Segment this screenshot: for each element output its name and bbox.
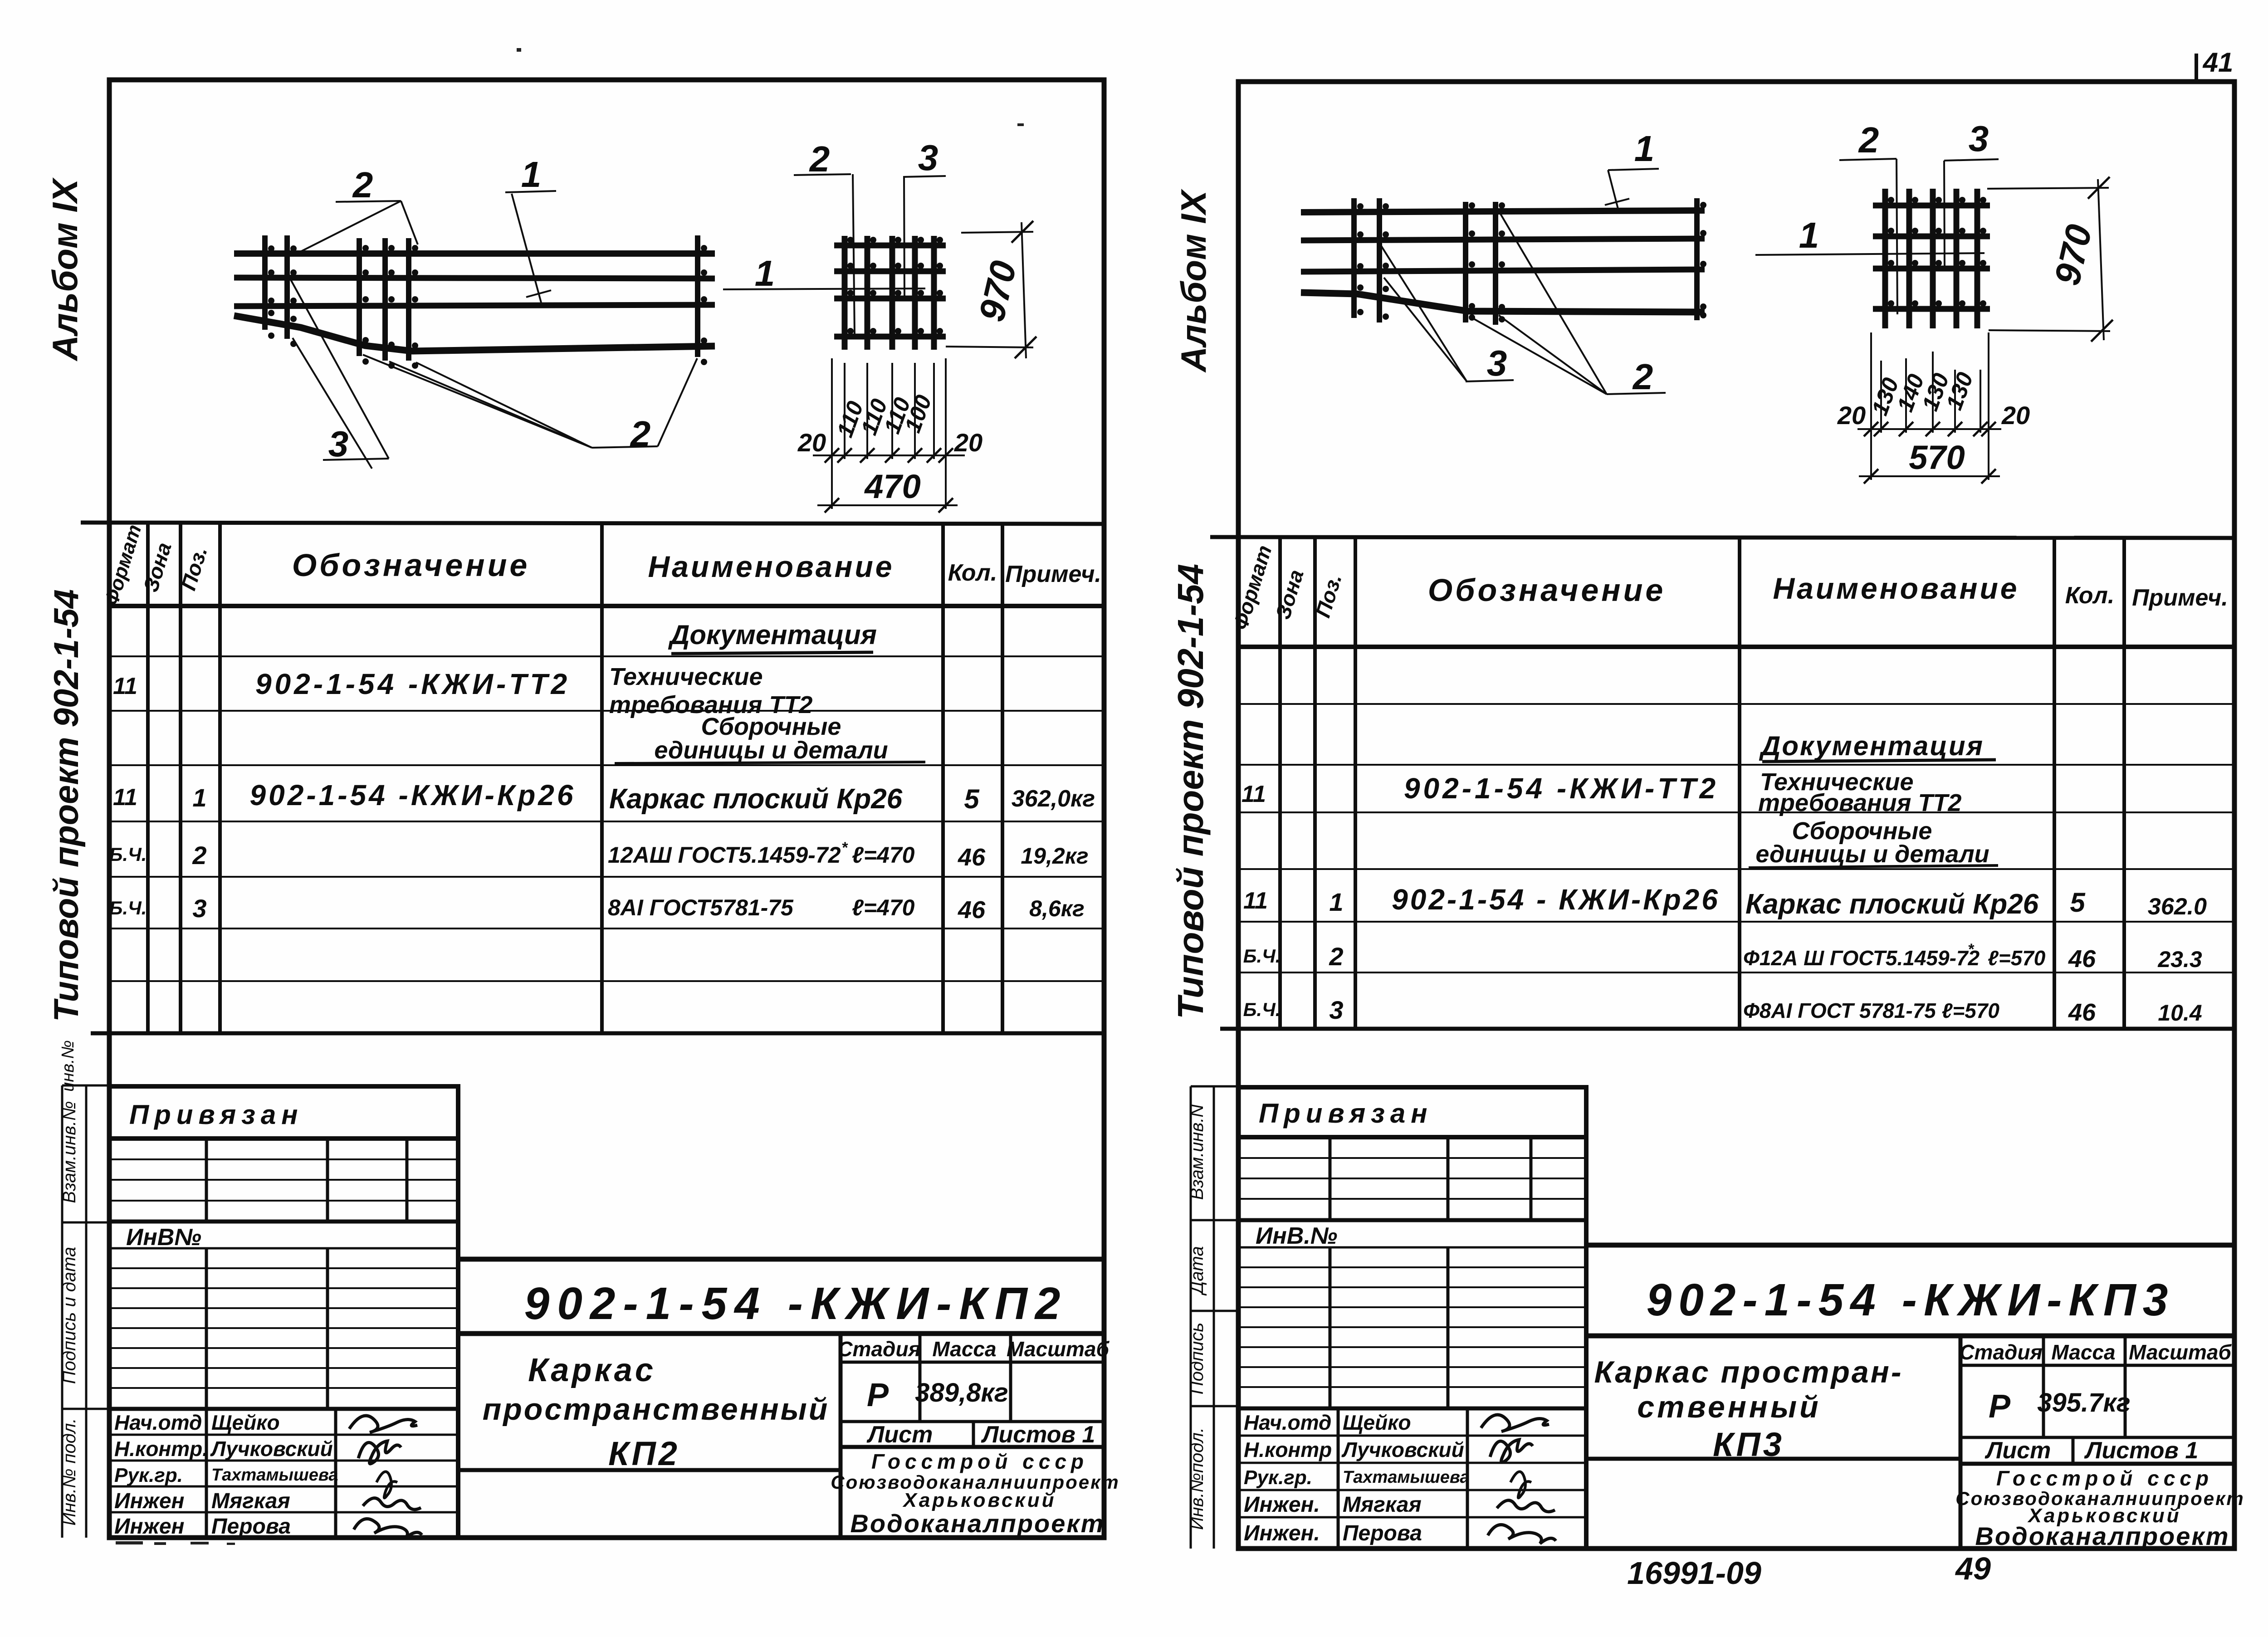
svg-text:2: 2 (352, 165, 373, 205)
svg-text:2: 2 (630, 414, 651, 454)
svg-text:2: 2 (1858, 120, 1879, 160)
svg-text:ИнВ№: ИнВ№ (126, 1224, 201, 1251)
svg-text:46: 46 (2068, 945, 2096, 972)
svg-text:Б.Ч.: Б.Ч. (1243, 945, 1281, 967)
svg-text:Перова: Перова (1343, 1521, 1422, 1545)
svg-text:Подпись: Подпись (1187, 1323, 1207, 1395)
svg-text:ℓ=570: ℓ=570 (1988, 946, 2046, 970)
svg-text:Каркас плоский Кр26: Каркас плоский Кр26 (1745, 889, 2039, 920)
svg-text:5: 5 (964, 784, 980, 814)
svg-text:395.7кг: 395.7кг (2037, 1388, 2131, 1417)
svg-text:ственный: ственный (1637, 1390, 1821, 1424)
svg-text:Инв.№ подл.: Инв.№ подл. (59, 1418, 79, 1525)
svg-text:20: 20 (1837, 401, 1866, 430)
svg-text:1: 1 (192, 783, 206, 812)
svg-text:Привязан: Привязан (129, 1099, 303, 1130)
svg-text:8АI ГОСТ5781-75: 8АI ГОСТ5781-75 (608, 895, 794, 920)
svg-text:362,0кг: 362,0кг (1012, 786, 1095, 812)
svg-text:Ф12А Ш ГОСТ5.1459-72: Ф12А Ш ГОСТ5.1459-72 (1743, 946, 1980, 970)
svg-text:Инв.№подл.: Инв.№подл. (1187, 1427, 1207, 1530)
svg-text:Щейко: Щейко (211, 1411, 280, 1434)
svg-text:902-1-54 -КЖИ-Кр26: 902-1-54 -КЖИ-Кр26 (250, 779, 576, 811)
svg-text:КП2: КП2 (608, 1435, 680, 1472)
svg-text:Наименование: Наименование (1773, 572, 2019, 605)
svg-text:2: 2 (1632, 357, 1653, 397)
svg-text:Альбом IX: Альбом IX (1173, 189, 1213, 373)
svg-text:12АШ ГОСТ5.1459-72: 12АШ ГОСТ5.1459-72 (608, 842, 841, 868)
svg-text:Примеч.: Примеч. (1005, 561, 1101, 587)
svg-text:3: 3 (328, 424, 349, 464)
svg-text:20: 20 (954, 428, 982, 457)
svg-text:Р: Р (867, 1377, 889, 1413)
svg-text:Сборочные: Сборочные (701, 713, 841, 740)
svg-text:49: 49 (1955, 1551, 1991, 1586)
svg-text:2: 2 (1329, 942, 1343, 971)
svg-text:Взам.инв.№: Взам.инв.№ (59, 1101, 79, 1203)
svg-text:Госстрой ссср: Госстрой ссср (871, 1450, 1088, 1473)
svg-text:3: 3 (918, 137, 938, 178)
svg-text:20: 20 (797, 428, 826, 457)
svg-text:Нач.отд: Нач.отд (1244, 1411, 1331, 1434)
svg-text:Тахтамышева: Тахтамышева (211, 1466, 338, 1485)
svg-text:2: 2 (809, 139, 830, 179)
svg-text:46: 46 (958, 844, 986, 871)
svg-text:389,8кг: 389,8кг (915, 1378, 1008, 1407)
svg-text:1: 1 (1799, 215, 1819, 255)
svg-text:Мягкая: Мягкая (211, 1489, 290, 1513)
svg-text:Перова: Перова (211, 1515, 291, 1539)
svg-text:Типовой проект 902-1-54: Типовой проект 902-1-54 (47, 589, 86, 1022)
svg-text:Инжен.: Инжен. (1244, 1521, 1320, 1545)
svg-text:единицы и детали: единицы и детали (1755, 840, 1989, 868)
svg-text:Примеч.: Примеч. (2132, 585, 2228, 611)
svg-text:902-1-54 -КЖИ-ТТ2: 902-1-54 -КЖИ-ТТ2 (1404, 772, 1719, 805)
svg-text:Зона: Зона (1271, 567, 1308, 622)
svg-text:Обозначение: Обозначение (292, 547, 530, 583)
svg-text:Листов 1: Листов 1 (2084, 1437, 2199, 1464)
svg-text:Тахтамышева: Тахтамышева (1343, 1468, 1469, 1487)
svg-text:19,2кг: 19,2кг (1021, 843, 1088, 869)
svg-text:Водоканалпроект: Водоканалпроект (850, 1509, 1105, 1538)
svg-text:Документация: Документация (1759, 731, 1984, 761)
svg-text:единицы и детали: единицы и детали (654, 737, 888, 764)
svg-text:ИнВ.№: ИнВ.№ (1256, 1223, 1337, 1249)
svg-text:46: 46 (958, 896, 986, 924)
svg-text:Щейко: Щейко (1343, 1411, 1411, 1434)
svg-text:20: 20 (2001, 401, 2030, 430)
svg-text:Б.Ч.: Б.Ч. (109, 844, 147, 865)
svg-text:Типовой проект 902-1-54: Типовой проект 902-1-54 (1170, 564, 1211, 1019)
svg-text:Привязан: Привязан (1259, 1098, 1432, 1129)
svg-text:Документация: Документация (668, 620, 877, 650)
svg-text:5: 5 (2070, 887, 2086, 918)
svg-text:970: 970 (971, 257, 1024, 325)
svg-text:Инжен: Инжен (114, 1515, 185, 1539)
svg-text:Лист: Лист (1984, 1437, 2051, 1464)
svg-text:Б.Ч.: Б.Ч. (109, 897, 147, 919)
svg-text:Водоканалпроект: Водоканалпроект (1975, 1522, 2229, 1550)
svg-text:Лист: Лист (866, 1422, 933, 1448)
svg-text:Н.контр.: Н.контр. (114, 1437, 208, 1461)
svg-text:470: 470 (864, 468, 920, 505)
svg-text:инв.№: инв.№ (59, 1040, 78, 1092)
svg-text:Рук.гр.: Рук.гр. (1244, 1466, 1312, 1489)
svg-text:1: 1 (1329, 888, 1343, 916)
svg-text:Каркас: Каркас (528, 1352, 656, 1388)
svg-text:100: 100 (899, 391, 936, 436)
svg-text:902-1-54 -КЖИ-ТТ2: 902-1-54 -КЖИ-ТТ2 (255, 668, 570, 700)
svg-text:Н.контр: Н.контр (1244, 1438, 1332, 1461)
svg-text:11: 11 (113, 784, 137, 811)
svg-text:Харьковский: Харьковский (902, 1489, 1056, 1511)
svg-text:Кол.: Кол. (948, 560, 997, 586)
svg-text:11: 11 (1243, 888, 1268, 914)
svg-text:Подпись и дата: Подпись и дата (59, 1247, 79, 1384)
svg-text:Инжен: Инжен (114, 1489, 185, 1513)
svg-text:*: * (841, 839, 848, 856)
svg-text:Масштаб: Масштаб (1007, 1337, 1110, 1361)
svg-text:3: 3 (1487, 343, 1507, 383)
svg-text:Формат: Формат (1228, 542, 1276, 633)
svg-text:Госстрой ссср: Госстрой ссср (1996, 1466, 2213, 1490)
svg-text:902-1-54 -КЖИ-КП2: 902-1-54 -КЖИ-КП2 (524, 1278, 1068, 1329)
svg-text:Альбом IX: Альбом IX (45, 177, 85, 362)
svg-text:Ф8АI ГОСТ 5781-75 ℓ=570: Ф8АI ГОСТ 5781-75 ℓ=570 (1743, 999, 1999, 1022)
svg-text:3: 3 (1969, 118, 1989, 159)
svg-text:пространственный: пространственный (483, 1392, 830, 1427)
svg-text:1: 1 (521, 154, 542, 195)
svg-text:Каркас плоский Кр26: Каркас плоский Кр26 (609, 783, 903, 815)
svg-text:8,6кг: 8,6кг (1029, 896, 1085, 921)
svg-text:46: 46 (2068, 999, 2096, 1026)
svg-text:ℓ=470: ℓ=470 (852, 842, 915, 868)
svg-text:Взам.инв.N: Взам.инв.N (1187, 1104, 1207, 1200)
svg-text:1: 1 (1634, 128, 1655, 169)
svg-text:3: 3 (192, 894, 206, 923)
svg-text:Масса: Масса (2051, 1340, 2115, 1364)
svg-text:16991-09: 16991-09 (1627, 1555, 1761, 1591)
svg-text:11: 11 (113, 673, 137, 699)
svg-text:41: 41 (2203, 47, 2234, 78)
svg-text:362.0: 362.0 (2148, 894, 2207, 920)
svg-text:Нач.отд: Нач.отд (114, 1411, 202, 1434)
svg-text:1: 1 (755, 253, 775, 293)
svg-text:Б.Ч.: Б.Ч. (1243, 999, 1281, 1020)
svg-text:требования ТТ2: требования ТТ2 (1758, 789, 1961, 816)
svg-text:23.3: 23.3 (2157, 947, 2202, 972)
svg-text:570: 570 (1909, 439, 1965, 476)
svg-text:Лучковский: Лучковский (1341, 1438, 1464, 1461)
svg-text:970: 970 (2047, 221, 2100, 289)
svg-text:*: * (1968, 941, 1975, 958)
svg-text:КП3: КП3 (1713, 1426, 1784, 1463)
svg-text:Дата: Дата (1187, 1246, 1207, 1296)
svg-text:3: 3 (1329, 996, 1343, 1024)
svg-text:Каркас простран-: Каркас простран- (1594, 1355, 1903, 1389)
svg-text:Масштаб: Масштаб (2129, 1340, 2232, 1364)
svg-text:130: 130 (1941, 369, 1978, 413)
svg-text:Лучковский: Лучковский (210, 1437, 333, 1461)
svg-text:902-1-54 - КЖИ-Кр26: 902-1-54 - КЖИ-Кр26 (1392, 883, 1720, 916)
svg-text:Обозначение: Обозначение (1428, 572, 1666, 608)
svg-text:Инжен.: Инжен. (1244, 1493, 1320, 1517)
svg-text:11: 11 (1242, 781, 1266, 807)
svg-text:ℓ=470: ℓ=470 (852, 895, 915, 920)
svg-text:Листов 1: Листов 1 (981, 1422, 1095, 1448)
svg-text:Кол.: Кол. (2065, 582, 2115, 609)
svg-text:Технические: Технические (609, 663, 763, 690)
svg-text:Масса: Масса (932, 1337, 996, 1361)
svg-text:2: 2 (192, 841, 206, 870)
svg-text:10.4: 10.4 (2158, 1000, 2202, 1026)
svg-text:Наименование: Наименование (648, 550, 894, 583)
svg-text:902-1-54 -КЖИ-КП3: 902-1-54 -КЖИ-КП3 (1647, 1275, 2175, 1325)
svg-text:Рук.гр.: Рук.гр. (114, 1464, 183, 1486)
svg-text:Р: Р (1989, 1388, 2011, 1425)
svg-text:Мягкая: Мягкая (1343, 1493, 1422, 1517)
svg-text:Зона: Зона (139, 540, 176, 595)
svg-text:Стадия: Стадия (1959, 1340, 2042, 1364)
svg-text:Стадия: Стадия (837, 1337, 920, 1361)
